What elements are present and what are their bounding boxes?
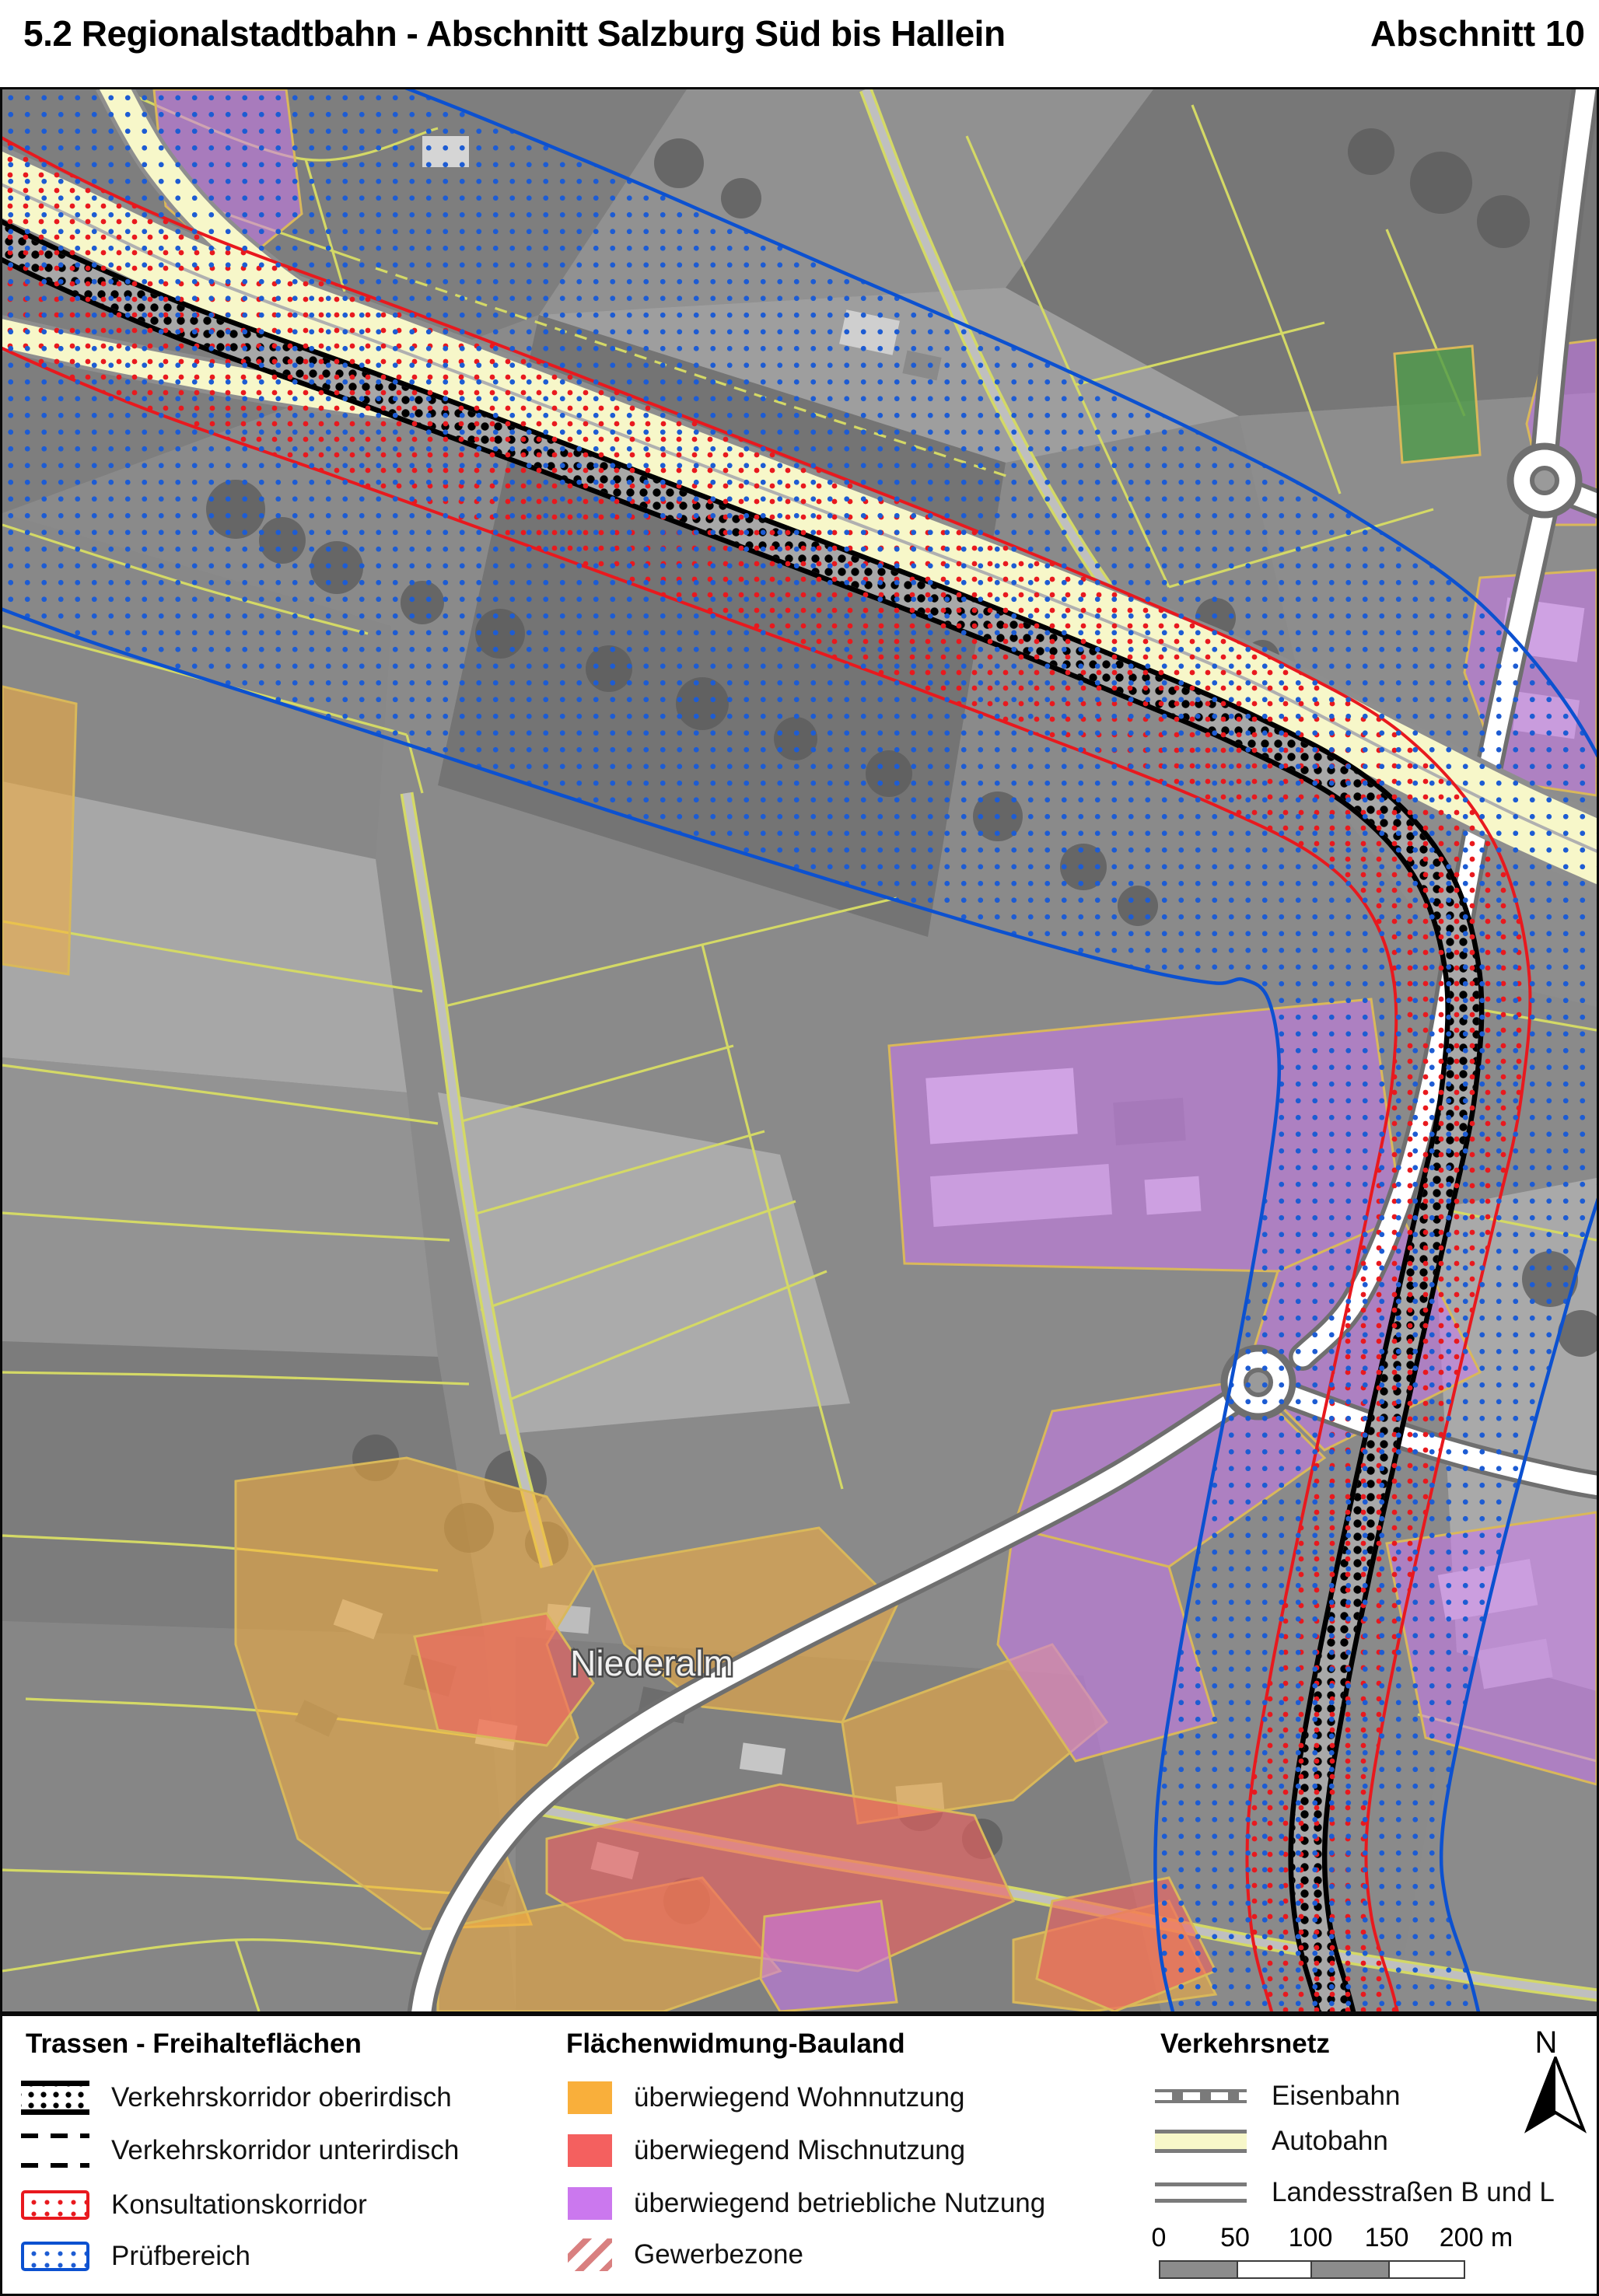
- konsultationskorridor-swatch-icon: [21, 2190, 89, 2220]
- legend-item-konsultationskorridor: Konsultationskorridor: [21, 2187, 367, 2223]
- legend-item-label: Eisenbahn: [1272, 2081, 1400, 2112]
- pruefbereich-swatch-icon: [21, 2242, 89, 2271]
- legend-item-betriebliche-nutzung: überwiegend betriebliche Nutzung: [568, 2186, 1045, 2221]
- verkehrskorridor-oberirdisch-swatch-icon: [21, 2081, 89, 2115]
- autobahn-swatch-icon: [1155, 2130, 1247, 2153]
- legend-title-verkehrsnetz: Verkehrsnetz: [1160, 2029, 1330, 2060]
- legend-item-landesstrassen: Landesstraßen B und L: [1155, 2175, 1555, 2210]
- wohnnutzung-swatch-icon: [568, 2081, 612, 2114]
- legend-item-autobahn: Autobahn: [1155, 2123, 1388, 2159]
- scale-bar: [1159, 2260, 1465, 2279]
- legend-item-mischnutzung: überwiegend Mischnutzung: [568, 2133, 965, 2168]
- legend-item-eisenbahn: Eisenbahn: [1155, 2078, 1400, 2114]
- legend-item-label: Autobahn: [1272, 2126, 1388, 2157]
- scale-bar-segment: [1237, 2262, 1313, 2277]
- scale-bar-segment: [1388, 2262, 1464, 2277]
- scale-tick: 0: [1152, 2223, 1167, 2253]
- place-label-niederalm: Niederalm: [570, 1643, 733, 1683]
- legend-item-label: überwiegend betriebliche Nutzung: [634, 2188, 1045, 2219]
- plan-sheet: { "header": { "title": "5.2 Regionalstad…: [0, 0, 1599, 2296]
- map-frame: Niederalm: [0, 87, 1599, 2014]
- betriebliche-nutzung-swatch-icon: [568, 2187, 612, 2220]
- mischnutzung-swatch-icon: [568, 2134, 612, 2167]
- scale-end-label: 200 m: [1440, 2223, 1513, 2253]
- page-title: 5.2 Regionalstadtbahn - Abschnitt Salzbu…: [23, 12, 1006, 54]
- scale-bar-segment: [1160, 2262, 1237, 2277]
- legend: Trassen - Freihalteflächen Verkehrskorri…: [0, 2014, 1599, 2296]
- legend-title-trassen: Trassen - Freihalteflächen: [26, 2029, 362, 2060]
- scale-bar-segment: [1312, 2262, 1388, 2277]
- eisenbahn-swatch-icon: [1155, 2089, 1247, 2103]
- verkehrskorridor-unterirdisch-swatch-icon: [21, 2133, 89, 2168]
- legend-title-flaechenwidmung: Flächenwidmung-Bauland: [566, 2029, 905, 2060]
- scale-tick: 100: [1289, 2223, 1333, 2253]
- north-arrow-icon: [1520, 2057, 1590, 2134]
- legend-item-label: Gewerbezone: [634, 2239, 803, 2270]
- landesstrassen-swatch-icon: [1155, 2182, 1247, 2203]
- gewerbezone-swatch-icon: [568, 2238, 612, 2271]
- legend-item-pruefbereich: Prüfbereich: [21, 2238, 250, 2274]
- legend-item-verkehrskorridor-oberirdisch: Verkehrskorridor oberirdisch: [21, 2080, 452, 2116]
- legend-item-verkehrskorridor-unterirdisch: Verkehrskorridor unterirdisch: [21, 2133, 459, 2168]
- legend-item-label: Prüfbereich: [111, 2241, 250, 2272]
- section-badge: Abschnitt 10: [1370, 12, 1585, 54]
- legend-item-gewerbezone: Gewerbezone: [568, 2237, 803, 2273]
- legend-item-wohnnutzung: überwiegend Wohnnutzung: [568, 2080, 965, 2116]
- scale-tick: 150: [1365, 2223, 1409, 2253]
- map-canvas: Niederalm: [2, 89, 1597, 2011]
- legend-item-label: überwiegend Wohnnutzung: [634, 2082, 965, 2113]
- north-label: N: [1535, 2025, 1558, 2060]
- legend-item-label: Verkehrskorridor oberirdisch: [111, 2082, 452, 2113]
- legend-item-label: Landesstraßen B und L: [1272, 2177, 1555, 2208]
- legend-item-label: überwiegend Mischnutzung: [634, 2135, 965, 2166]
- legend-item-label: Konsultationskorridor: [111, 2189, 367, 2221]
- legend-item-label: Verkehrskorridor unterirdisch: [111, 2135, 459, 2166]
- scale-tick: 50: [1220, 2223, 1250, 2253]
- title-bar: 5.2 Regionalstadtbahn - Abschnitt Salzbu…: [0, 0, 1599, 87]
